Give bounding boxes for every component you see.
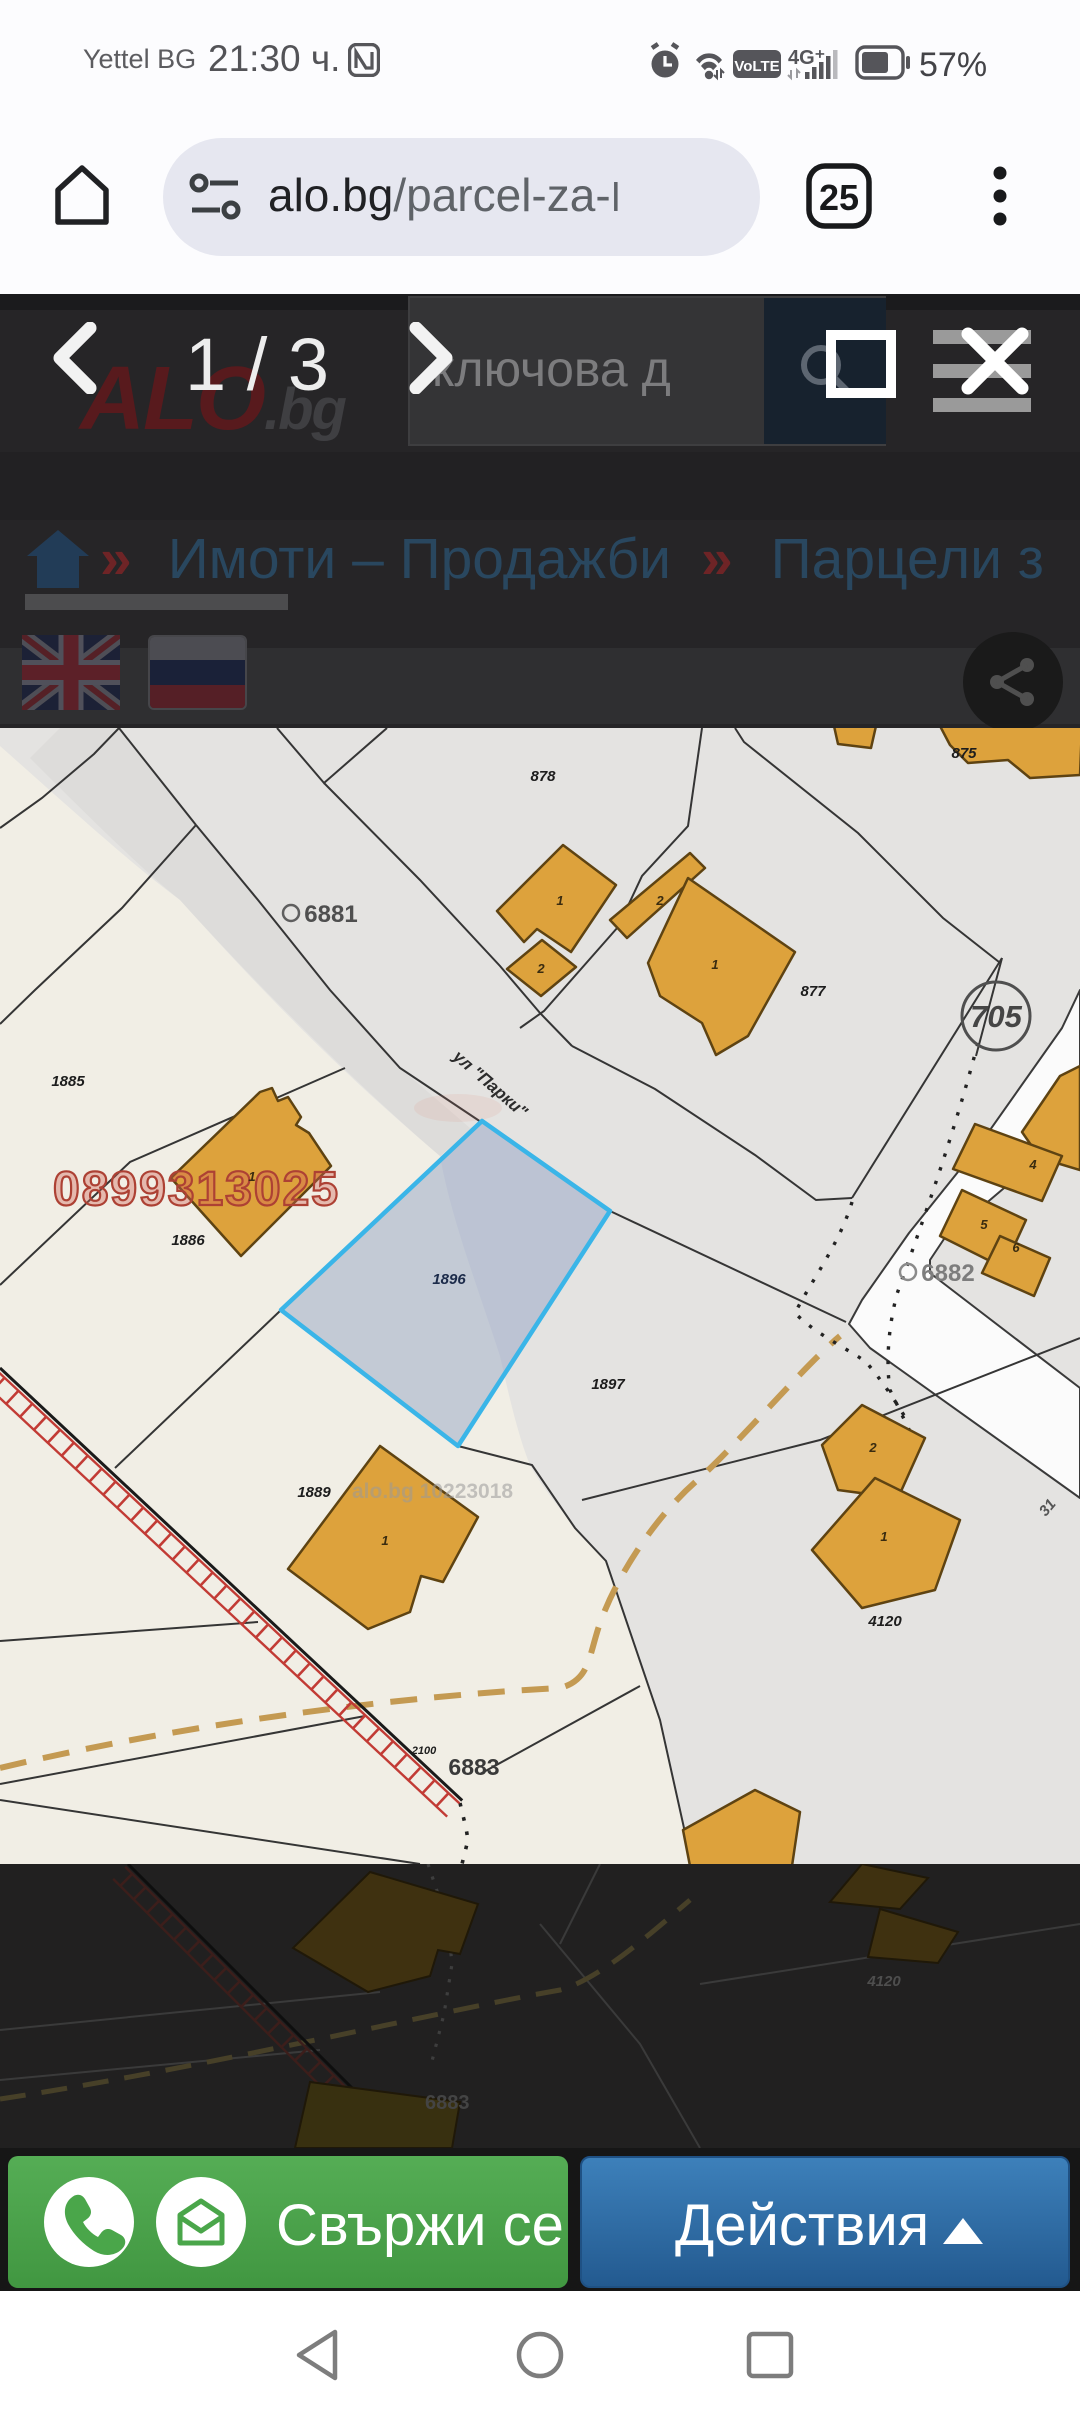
svg-text:6: 6 — [1012, 1240, 1020, 1255]
svg-text:878: 878 — [530, 768, 556, 785]
svg-text:1: 1 — [248, 1169, 255, 1184]
svg-text:1: 1 — [556, 893, 563, 908]
svg-text:4120: 4120 — [866, 1973, 901, 1990]
svg-text:6883: 6883 — [425, 2092, 470, 2114]
svg-text:4: 4 — [1028, 1157, 1037, 1172]
svg-text:57%: 57% — [919, 46, 987, 84]
svg-text:877: 877 — [800, 983, 826, 1000]
svg-text:875: 875 — [951, 745, 977, 762]
svg-text:6881: 6881 — [304, 901, 357, 928]
svg-text:1: 1 — [381, 1533, 388, 1548]
svg-text:0899313025: 0899313025 — [53, 1163, 340, 1216]
svg-text:1: 1 — [880, 1529, 887, 1544]
svg-text:1897: 1897 — [591, 1376, 625, 1393]
svg-text:alo.bg 10223018: alo.bg 10223018 — [352, 1480, 513, 1503]
svg-text:1889: 1889 — [297, 1484, 331, 1501]
svg-text:2: 2 — [655, 893, 664, 908]
svg-text:4120: 4120 — [867, 1613, 902, 1630]
svg-text:705: 705 — [970, 999, 1022, 1034]
svg-text:25: 25 — [819, 177, 859, 218]
svg-text:5: 5 — [980, 1217, 988, 1232]
svg-text:2100: 2100 — [411, 1745, 437, 1757]
svg-text:1896: 1896 — [432, 1271, 466, 1288]
svg-text:6882: 6882 — [921, 1260, 974, 1287]
svg-text:6883: 6883 — [448, 1754, 499, 1780]
svg-text:1886: 1886 — [171, 1232, 205, 1249]
svg-text:2: 2 — [536, 961, 545, 976]
svg-text:1885: 1885 — [51, 1073, 85, 1090]
svg-text:2: 2 — [868, 1440, 877, 1455]
svg-text:VoLTE: VoLTE — [734, 58, 779, 75]
svg-text:1: 1 — [711, 957, 718, 972]
